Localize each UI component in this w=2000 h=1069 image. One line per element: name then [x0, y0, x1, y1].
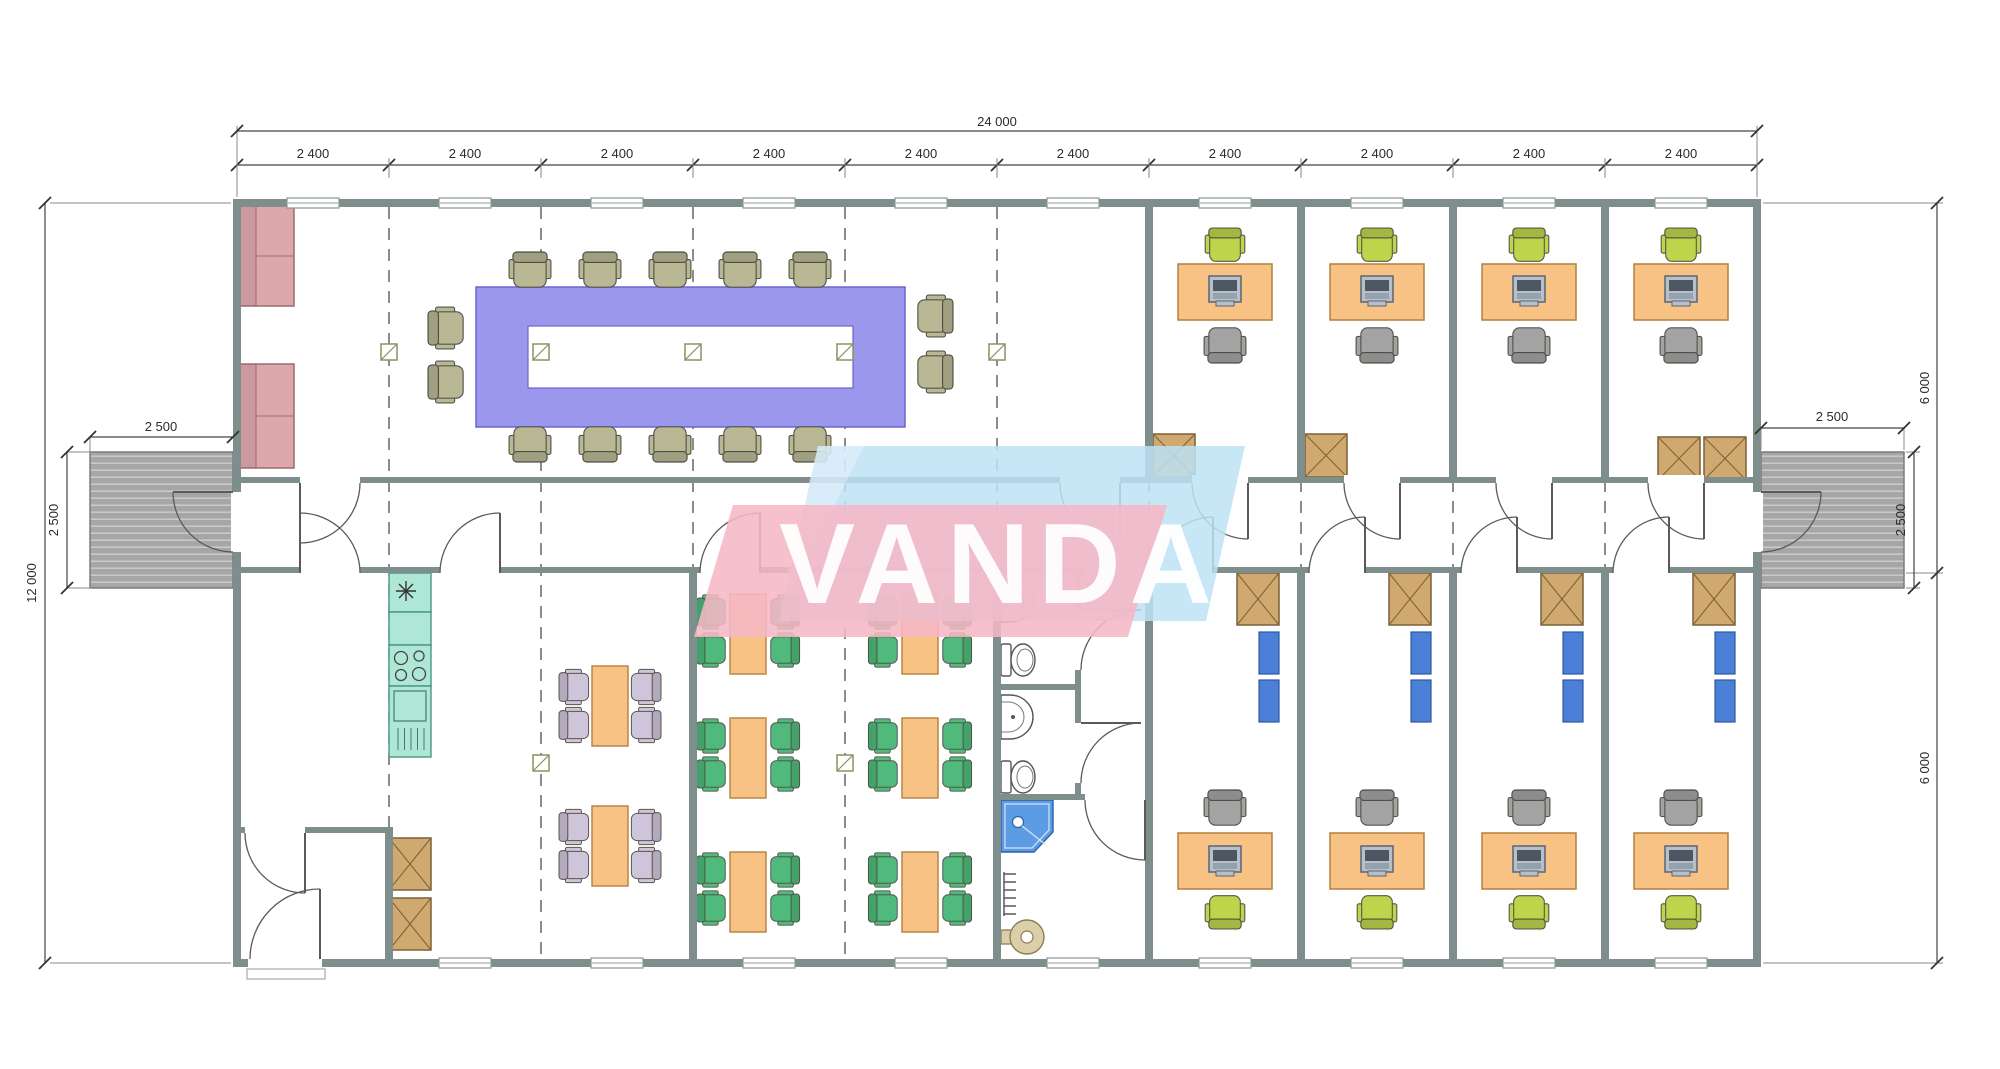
boiler-icon: [1001, 920, 1044, 954]
dim-module: 2 400: [1513, 146, 1546, 161]
dim-right-bottom-height: 6 000: [1917, 752, 1932, 785]
dim-module: 2 400: [1209, 146, 1242, 161]
wardrobe-cabinet: [1237, 573, 1735, 625]
dim-right-deck-depth: 2 500: [1893, 504, 1908, 537]
right-deck: [1761, 452, 1904, 588]
dim-module: 2 400: [1665, 146, 1698, 161]
dim-right-top-height: 6 000: [1917, 372, 1932, 405]
floor-plan-canvas: 24 000 2 400 2 400 2 400 2 400 2 400 2 4…: [0, 0, 2000, 1069]
dim-right-deck-width: 2 500: [1816, 409, 1849, 424]
watermark: VANDA: [694, 446, 1245, 637]
dim-module: 2 400: [1057, 146, 1090, 161]
dining-hall: [696, 594, 971, 932]
radiator-icon: [1004, 872, 1016, 916]
lounge-table: [592, 666, 628, 886]
storage-box: [389, 838, 431, 950]
shelf-unit-blue: [1259, 632, 1735, 722]
sink-star-icon: [396, 581, 416, 601]
dim-module: 2 400: [905, 146, 938, 161]
kitchen-counter: [389, 573, 431, 757]
floor-plan-drawing: 24 000 2 400 2 400 2 400 2 400 2 400 2 4…: [0, 0, 2000, 1069]
dim-left-deck-width: 2 500: [145, 419, 178, 434]
dim-left-height: 12 000: [24, 563, 39, 603]
dim-module: 2 400: [601, 146, 634, 161]
sofa: [240, 364, 294, 468]
conference-room: [240, 206, 953, 468]
kitchen-lounge-room: [389, 573, 661, 950]
dim-left-deck-depth: 2 500: [46, 504, 61, 537]
dining-table: [730, 594, 938, 932]
dim-module: 2 400: [297, 146, 330, 161]
dim-total-width: 24 000: [977, 114, 1017, 129]
shower-icon: [1001, 794, 1053, 852]
dimension-top-modules: 2 400 2 400 2 400 2 400 2 400 2 400 2 40…: [231, 146, 1763, 178]
sofa: [240, 206, 294, 306]
watermark-logo-text: VANDA: [779, 501, 1221, 628]
dim-module: 2 400: [1361, 146, 1394, 161]
entry-porch-step: [247, 969, 325, 979]
left-deck: [90, 452, 233, 588]
dim-module: 2 400: [753, 146, 786, 161]
dim-module: 2 400: [449, 146, 482, 161]
